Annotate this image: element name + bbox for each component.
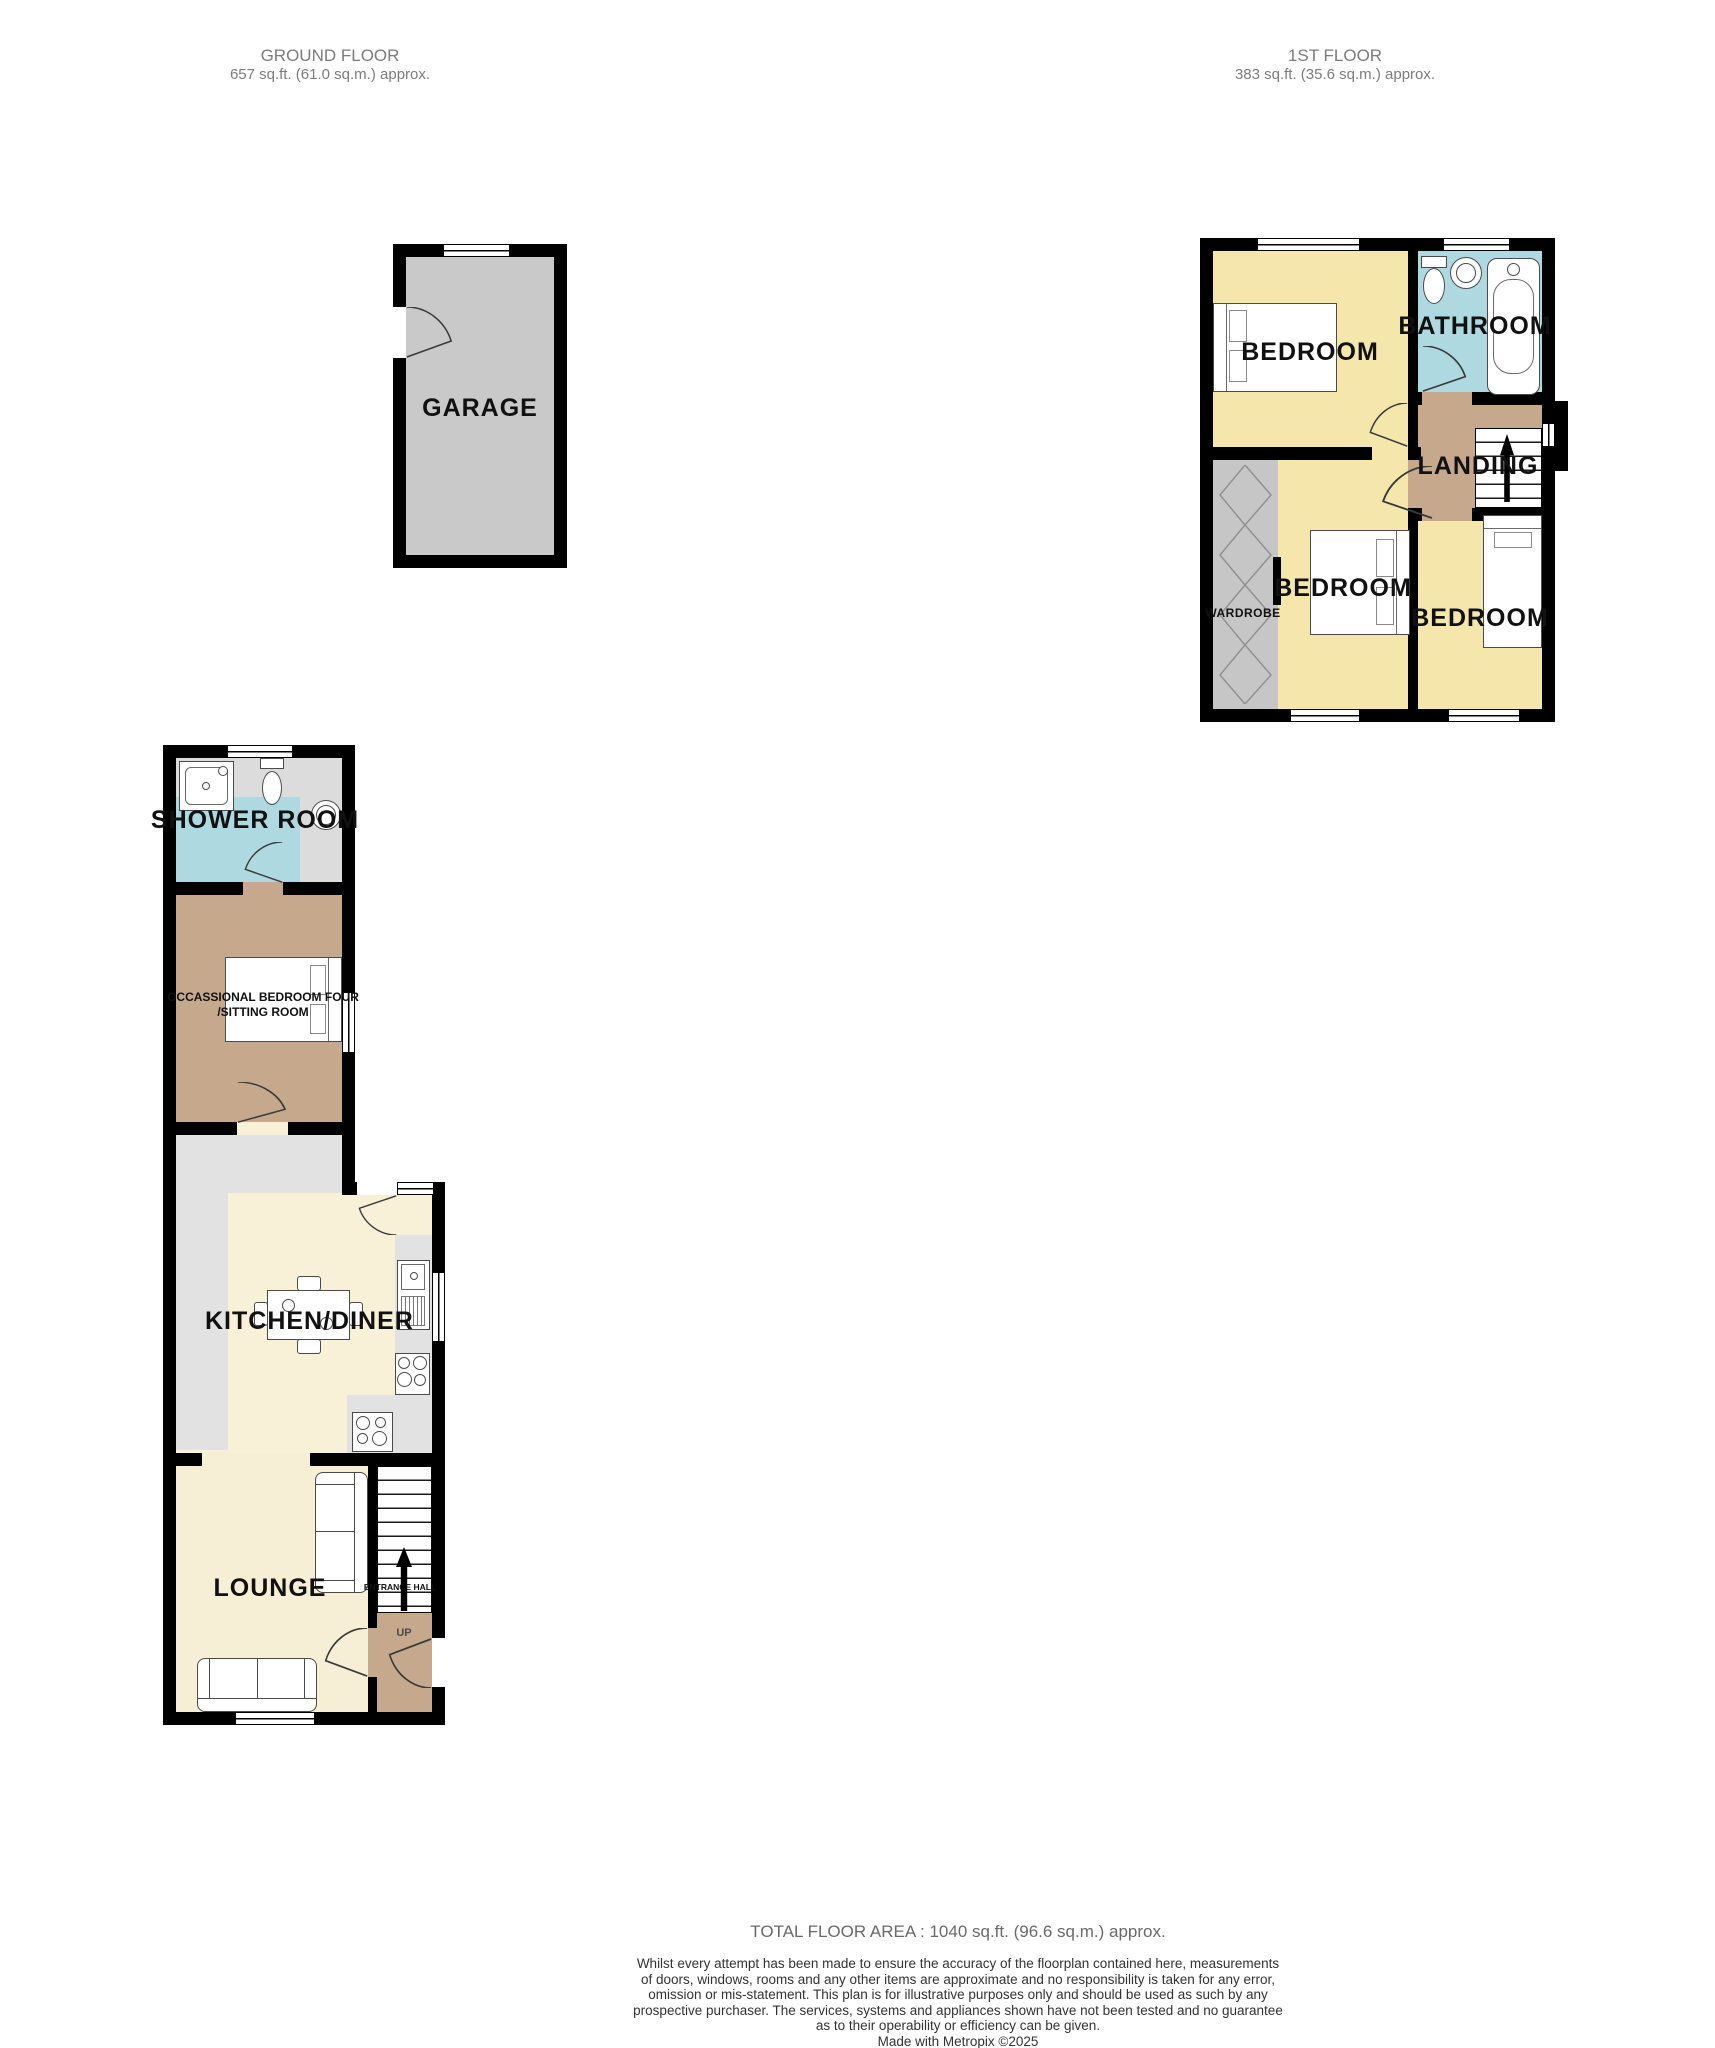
first-floor-area: 383 sq.ft. (35.6 sq.m.) approx. [1135,66,1535,84]
door-arc [237,1082,288,1123]
toilet-cistern [260,758,284,769]
window [1448,709,1520,722]
wall [163,1453,202,1466]
chair [297,1276,321,1291]
bedroom-2-label: BEDROOM [1258,575,1428,603]
kitchen-diner-label: KITCHEN/DINER [205,1308,405,1336]
chair [297,1339,321,1354]
wall [1408,251,1418,447]
door-opening [393,307,406,358]
window [1443,238,1510,251]
door-arc [243,842,283,883]
bedroom-1-label: BEDROOM [1225,339,1395,367]
window [227,745,293,758]
room-opening [202,1453,310,1466]
kitchen-counter [176,1135,228,1450]
door-arc [323,1628,368,1677]
door-opening [237,1122,288,1135]
first-floor-header: 1ST FLOOR 383 sq.ft. (35.6 sq.m.) approx… [1135,46,1535,84]
ground-floor-area: 657 sq.ft. (61.0 sq.m.) approx. [130,66,530,84]
occasional-bedroom-label-line1: OCCASSIONAL BEDROOM FOUR [163,991,363,1004]
shower-tray [179,761,234,811]
kitchen-counter [228,1135,347,1193]
door-opening [368,1628,377,1677]
floorplan-page: GROUND FLOOR 657 sq.ft. (61.0 sq.m.) app… [0,0,1715,2048]
toilet [262,771,282,805]
first-floor-title: 1ST FLOOR [1135,46,1535,66]
disclaimer-line: as to their operability or efficiency ca… [358,2018,1558,2034]
oven [352,1412,393,1452]
toilet-cistern [1421,256,1447,268]
door-arc [1368,403,1408,447]
wardrobe-label: WARDROBE [1178,607,1308,620]
window [235,1712,315,1725]
door-arc [387,1638,432,1688]
garage-plan: GARAGE [393,244,567,568]
sofa [197,1658,317,1712]
basin-bowl [1456,263,1476,283]
disclaimer-line: of doors, windows, rooms and any other i… [358,1972,1558,1988]
door-arc [1422,346,1468,392]
disclaimer-line: Whilst every attempt has been made to en… [358,1956,1558,1972]
disclaimer: Whilst every attempt has been made to en… [358,1956,1558,2048]
ground-floor-plan: SHOWER ROOM OCCASSIONAL BEDROOM FOUR /SI… [163,745,447,1725]
window [1290,709,1360,722]
door-arc [357,1195,397,1235]
ground-floor-title: GROUND FLOOR [130,46,530,66]
door-opening [1422,392,1472,405]
up-label: UP [389,1627,419,1639]
window [443,244,510,257]
window [397,1182,434,1195]
total-floor-area: TOTAL FLOOR AREA : 1040 sq.ft. (96.6 sq.… [438,1922,1478,1942]
hob [395,1353,430,1395]
door-opening [243,882,283,895]
entrance-hall-label: ENTRANCE HALL [345,1583,455,1592]
wall [342,1182,357,1195]
metropix-credit: Made with Metropix ©2025 [358,2034,1558,2048]
door-opening [357,1182,397,1195]
window [432,1272,445,1342]
disclaimer-line: prospective purchaser. The services, sys… [358,2003,1558,2019]
disclaimer-line: omission or mis-statement. This plan is … [358,1987,1558,2003]
wall [310,1453,432,1466]
bedroom-3-label: BEDROOM [1395,605,1565,633]
toilet [1423,268,1445,304]
landing-label: LANDING [1393,453,1563,481]
window [1542,423,1555,447]
first-floor-plan: BEDROOM BATHROOM LANDING WARDROBE BEDROO… [1200,238,1555,722]
occasional-bedroom-label-line2: /SITTING ROOM [163,1006,363,1019]
bathroom-label: BATHROOM [1390,313,1560,341]
door-arc [406,307,454,358]
ground-floor-header: GROUND FLOOR 657 sq.ft. (61.0 sq.m.) app… [130,46,530,84]
garage-label: GARAGE [406,395,554,423]
lounge-label: LOUNGE [185,1575,355,1603]
shower-room-label: SHOWER ROOM [150,807,360,835]
up-arrow-icon [396,1547,412,1611]
window [1257,238,1360,251]
front-door-opening [432,1638,445,1687]
